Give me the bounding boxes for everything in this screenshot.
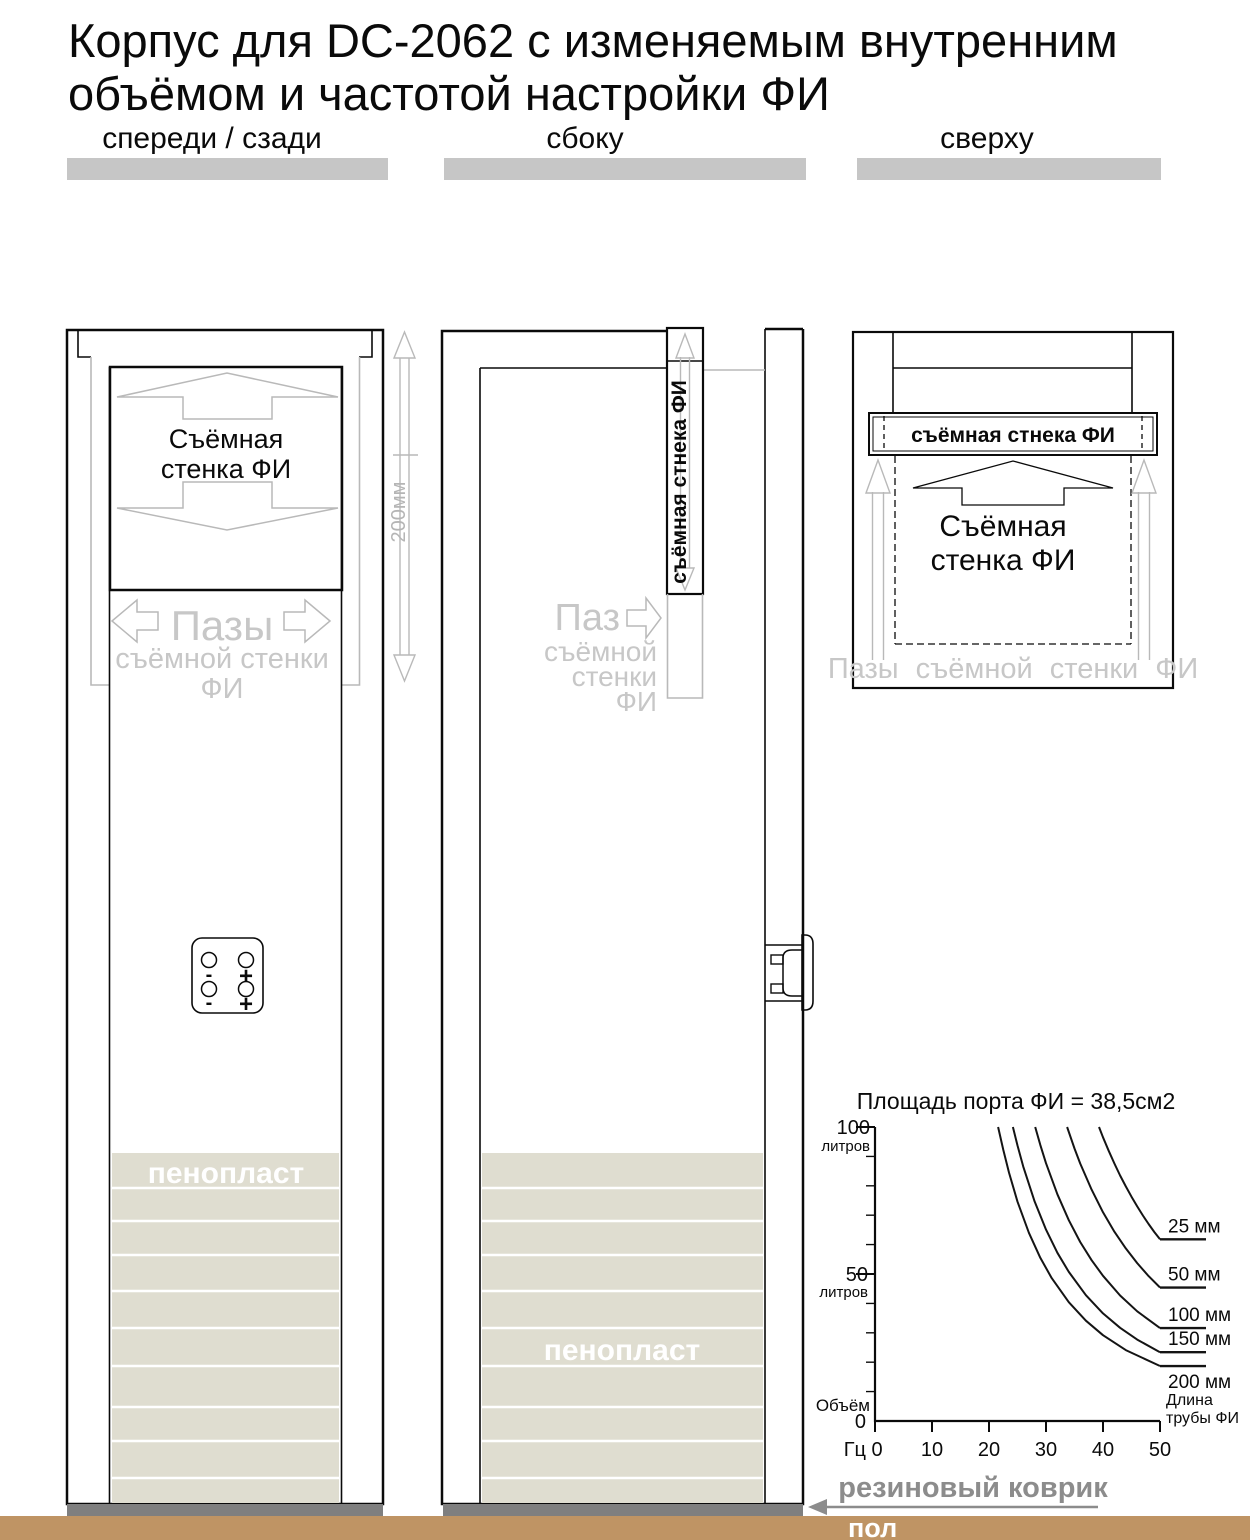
front-foam-label: пенопласт [148,1157,305,1190]
top-inner-walls [893,332,1132,413]
arrow-up-icon [1132,460,1156,660]
terminal-plus-label: + [239,963,253,990]
chart-legend-line1: Длина [1166,1392,1213,1409]
chart-x-tick-40: 40 [1092,1439,1114,1461]
chart-series-label: 100 мм [1168,1305,1231,1326]
view-label-top: сверху [940,122,1034,155]
chart-series-label: 150 мм [1168,1329,1231,1350]
chart-curves: 25 мм50 мм100 мм150 мм200 мм [998,1127,1231,1393]
side-groove-outline [668,594,703,698]
chart-y-unit-top: литров [821,1138,870,1155]
header-bar-side [444,158,806,180]
chart-series-label: 25 мм [1168,1216,1221,1237]
enclosure-drawing-page: Корпус для DC-2062 с изменяемым внутренн… [0,0,1250,1540]
side-removable-wall-label: съёмная стнека ФИ [668,380,691,584]
top-removable-wall-label-line2: стенка ФИ [931,544,1076,577]
header-bar-top [857,158,1161,180]
terminal-minus-label: - [206,992,213,1014]
front-rubber-mat [67,1504,383,1516]
top-bar-label: съёмная стнека ФИ [911,424,1115,447]
front-removable-wall-label-line2: стенка ФИ [161,454,291,484]
side-terminal-cup [765,935,813,1010]
chart-x-tick-30: 30 [1035,1439,1057,1461]
side-rubber-mat [443,1504,803,1516]
chart-curve [1013,1127,1160,1352]
tuning-chart: Площадь порта ФИ = 38,5см2 100 литров 50… [816,1088,1239,1461]
chart-x-tick-10: 10 [921,1439,943,1461]
chart-series-label: 200 мм [1168,1372,1231,1393]
front-grooves-label-line2: съёмной стенки [115,643,329,675]
arrow-up-icon [866,460,890,660]
arrow-right-icon [627,598,661,638]
chart-x-unit: Гц [844,1439,866,1461]
header: Корпус для DC-2062 с изменяемым внутренн… [67,14,1161,180]
terminal-minus-label: - [206,964,213,986]
terminal-recess-outline [783,950,802,996]
front-top-rabbet [78,331,372,357]
chart-x-ticks [875,1421,1160,1432]
chart-x-tick-0: 0 [871,1439,882,1461]
arrow-up-icon [117,373,338,419]
chart-y-label-100: 100 [837,1117,870,1139]
terminal-plus-label: + [239,991,253,1018]
floor-band [0,1516,1250,1540]
arrow-left-icon [808,1499,827,1515]
technical-drawing: Корпус для DC-2062 с изменяемым внутренн… [0,0,1250,1540]
floor-label: пол [848,1513,897,1540]
front-foam-stack: пенопласт [112,1153,339,1503]
terminal-tab [771,984,783,993]
page-title-line2: объёмом и частотой настройки ФИ [68,67,830,120]
top-view: съёмная стнека ФИ Съёмная стенка ФИ Пазы… [828,332,1198,688]
arrow-right-icon [284,600,330,642]
top-grooves-label: Пазы съёмной стенки ФИ [828,653,1198,685]
chart-x-tick-50: 50 [1149,1439,1171,1461]
side-view: пенопласт съёмная стнека ФИ Паз съёмной … [442,328,813,1516]
side-groove-label-line4: ФИ [616,686,657,717]
chart-series-label: 50 мм [1168,1265,1221,1286]
page-title-line1: Корпус для DC-2062 с изменяемым внутренн… [68,14,1118,67]
side-foam-label: пенопласт [544,1334,701,1367]
front-grooves-label-line1: Пазы [171,602,274,649]
chart-curve [1035,1127,1160,1328]
arrow-up-icon [913,461,1113,505]
front-view: пенопласт Съёмная стенка ФИ Пазы съёмной… [67,330,418,1516]
chart-legend-line2: трубы ФИ [1166,1410,1239,1427]
arrow-down-icon [117,482,338,530]
front-removable-wall-label-line1: Съёмная [169,424,284,454]
view-label-side: сбоку [546,122,623,155]
top-removable-wall-label-line1: Съёмная [939,510,1066,543]
view-label-front: спереди / сзади [102,122,322,155]
front-grooves-label-line3: ФИ [201,673,244,705]
rubber-mat-label: резиновый коврик [838,1472,1108,1504]
chart-x-tick-20: 20 [978,1439,1000,1461]
front-dimension-label: 200мм [388,482,410,543]
front-dimension-200mm: 200мм [388,332,418,681]
chart-y-label-0: 0 [855,1411,866,1433]
chart-y-unit-mid: литров [819,1284,868,1301]
side-foam-stack: пенопласт [482,1153,763,1503]
side-groove-label-line1: Паз [555,597,620,639]
front-terminal-cup: - + - + [192,938,263,1018]
chart-curve [1067,1127,1160,1288]
terminal-tab [771,955,783,964]
header-bar-front [67,158,388,180]
chart-y-label-50: 50 [846,1264,868,1286]
arrow-left-icon [112,600,158,642]
chart-title: Площадь порта ФИ = 38,5см2 [857,1088,1176,1114]
